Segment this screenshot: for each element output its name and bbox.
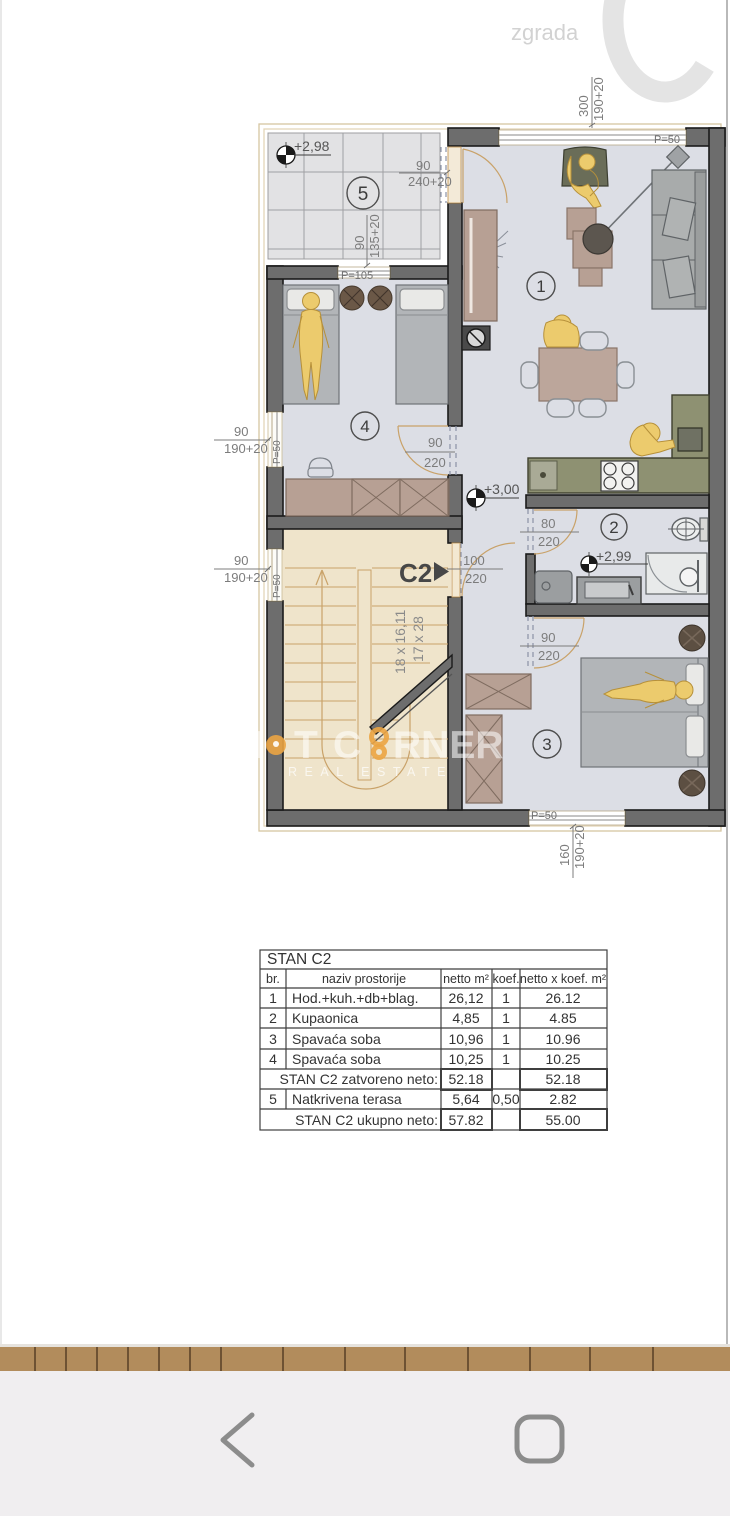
svg-text:90: 90 <box>416 158 430 173</box>
svg-text:52.18: 52.18 <box>448 1071 483 1087</box>
svg-text:190+20: 190+20 <box>224 441 268 456</box>
svg-text:br.: br. <box>266 972 280 986</box>
svg-text:2: 2 <box>609 518 618 537</box>
svg-text:Spavaća soba: Spavaća soba <box>292 1031 381 1047</box>
svg-text:STAN C2 ukupno neto:: STAN C2 ukupno neto: <box>295 1112 438 1128</box>
svg-text:P=50: P=50 <box>654 134 680 146</box>
svg-text:4.85: 4.85 <box>549 1010 576 1026</box>
svg-text:REAL ESTATE: REAL ESTATE <box>288 765 453 779</box>
svg-text:C: C <box>333 724 363 767</box>
svg-text:netto x koef. m²: netto x koef. m² <box>520 972 606 986</box>
svg-text:10,25: 10,25 <box>448 1051 483 1067</box>
svg-text:RNER: RNER <box>393 724 504 767</box>
svg-text:P=50: P=50 <box>531 810 557 822</box>
svg-text:18 x 16,11: 18 x 16,11 <box>392 609 408 674</box>
svg-text:1: 1 <box>502 1010 510 1026</box>
svg-text:netto m²: netto m² <box>443 972 489 986</box>
svg-text:26.12: 26.12 <box>545 990 580 1006</box>
svg-text:90: 90 <box>428 435 442 450</box>
svg-text:Hod.+kuh.+db+blag.: Hod.+kuh.+db+blag. <box>292 990 419 1006</box>
svg-text:90: 90 <box>234 553 248 568</box>
svg-text:10,96: 10,96 <box>448 1031 483 1047</box>
svg-text:koef.: koef. <box>492 972 519 986</box>
svg-text:5: 5 <box>269 1091 277 1107</box>
svg-text:C2: C2 <box>399 558 432 588</box>
svg-text:4: 4 <box>360 417 369 436</box>
svg-text:300: 300 <box>576 95 591 117</box>
svg-text:4: 4 <box>269 1051 277 1067</box>
svg-text:190+20: 190+20 <box>224 570 268 585</box>
svg-text:4,85: 4,85 <box>452 1010 479 1026</box>
svg-text:naziv prostorije: naziv prostorije <box>322 972 406 986</box>
svg-text:3: 3 <box>269 1031 277 1047</box>
svg-text:90: 90 <box>541 630 555 645</box>
svg-text:1: 1 <box>502 990 510 1006</box>
svg-text:P=105: P=105 <box>341 270 373 282</box>
svg-text:100: 100 <box>463 553 485 568</box>
svg-text:190+20: 190+20 <box>591 77 606 121</box>
svg-text:135+20: 135+20 <box>367 214 382 258</box>
svg-text:1: 1 <box>269 990 277 1006</box>
svg-text:2: 2 <box>269 1010 277 1026</box>
svg-text:1: 1 <box>502 1031 510 1047</box>
svg-text:90: 90 <box>234 424 248 439</box>
svg-text:220: 220 <box>424 455 446 470</box>
svg-text:80: 80 <box>541 516 555 531</box>
svg-text:55.00: 55.00 <box>545 1112 580 1128</box>
svg-text:+2,99: +2,99 <box>596 548 632 564</box>
svg-text:zgrada: zgrada <box>511 20 579 45</box>
svg-text:0,50: 0,50 <box>492 1091 519 1107</box>
svg-text:1: 1 <box>536 277 545 296</box>
svg-text:90: 90 <box>352 236 367 250</box>
svg-text:2.82: 2.82 <box>549 1091 576 1107</box>
svg-text:P=50: P=50 <box>272 574 283 598</box>
svg-text:160: 160 <box>557 844 572 866</box>
svg-text:Natkrivena terasa: Natkrivena terasa <box>292 1091 402 1107</box>
svg-text:3: 3 <box>542 735 551 754</box>
svg-text:10.96: 10.96 <box>545 1031 580 1047</box>
svg-text:H: H <box>237 724 267 767</box>
svg-text:10.25: 10.25 <box>545 1051 580 1067</box>
svg-text:+3,00: +3,00 <box>484 481 520 497</box>
svg-text:5: 5 <box>358 184 369 205</box>
svg-text:STAN C2: STAN C2 <box>267 951 331 968</box>
svg-text:STAN C2 zatvoreno neto:: STAN C2 zatvoreno neto: <box>280 1071 438 1087</box>
svg-text:Spavaća soba: Spavaća soba <box>292 1051 381 1067</box>
svg-text:+2,98: +2,98 <box>294 138 330 154</box>
svg-text:52.18: 52.18 <box>545 1071 580 1087</box>
svg-text:1: 1 <box>502 1051 510 1067</box>
svg-text:220: 220 <box>538 534 560 549</box>
svg-text:57.82: 57.82 <box>448 1112 483 1128</box>
svg-text:26,12: 26,12 <box>448 990 483 1006</box>
svg-text:17 x 28: 17 x 28 <box>410 616 426 662</box>
svg-text:240+20: 240+20 <box>408 174 452 189</box>
svg-text:T: T <box>294 724 320 767</box>
svg-text:220: 220 <box>465 571 487 586</box>
svg-text:190+20: 190+20 <box>572 825 587 869</box>
svg-text:Kupaonica: Kupaonica <box>292 1010 358 1026</box>
svg-text:220: 220 <box>538 648 560 663</box>
svg-text:5,64: 5,64 <box>452 1091 479 1107</box>
svg-text:P=50: P=50 <box>272 440 283 464</box>
